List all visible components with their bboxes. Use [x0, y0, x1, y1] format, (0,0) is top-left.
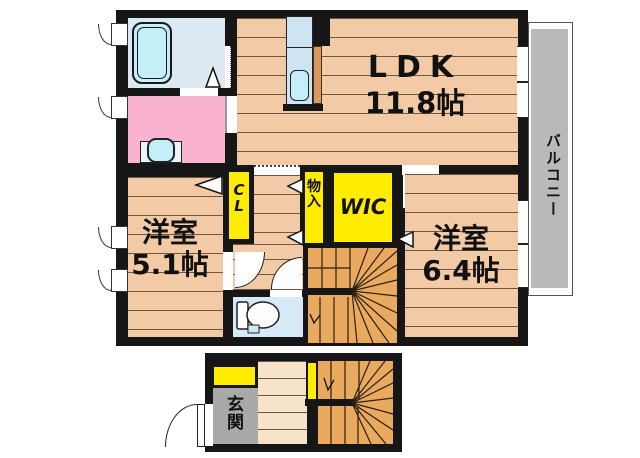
stairs-ground-treads: [331, 361, 393, 444]
closet-door-triangle: [196, 176, 222, 194]
storage-door-triangle-lower: [288, 230, 303, 245]
storage-label: 物入: [305, 180, 323, 209]
floor-plan: LDK 11.8帖 洋室 5.1帖 洋室 6.4帖 CL 物入 WIC バルコニ…: [0, 0, 640, 458]
closet-label: CL: [229, 183, 249, 215]
stairs-ground-direction-arrow: [324, 378, 334, 390]
toilet-fixture: [237, 302, 279, 333]
bedroom-large-name-label: 洋室: [400, 224, 522, 253]
bedroom-small-name-label: 洋室: [115, 218, 225, 247]
bedroom-small-size-label: 5.1帖: [115, 250, 225, 279]
stairs-upper-direction-arrow: [310, 314, 320, 323]
bedroom-large-size-label: 6.4帖: [400, 256, 522, 285]
stairs-upper-treads: [308, 248, 397, 343]
wic-label: WIC: [334, 196, 392, 218]
balcony-label: バルコニー: [538, 105, 560, 245]
ldk-name-label: LDK: [325, 52, 505, 84]
storage-door-triangle-upper: [288, 179, 303, 194]
ldk-size-label: 11.8帖: [325, 88, 505, 118]
entrance-label: 玄関: [226, 397, 245, 433]
bath-folding-door-triangle: [206, 68, 220, 87]
